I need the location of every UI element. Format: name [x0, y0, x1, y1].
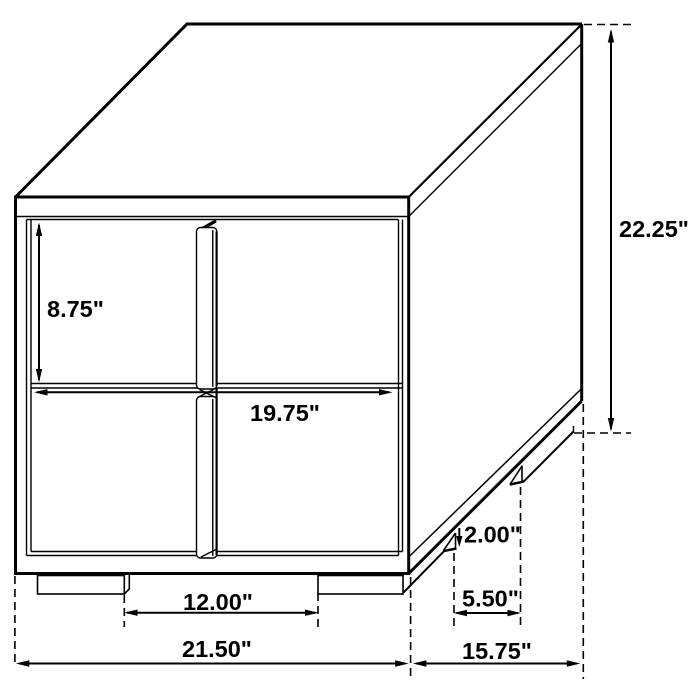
svg-text:2.00": 2.00": [464, 522, 521, 548]
svg-text:22.25": 22.25": [619, 216, 689, 242]
svg-text:15.75": 15.75": [462, 638, 532, 664]
svg-text:5.50": 5.50": [462, 586, 519, 612]
svg-text:12.00": 12.00": [183, 589, 253, 615]
svg-text:19.75": 19.75": [250, 400, 320, 426]
svg-text:8.75": 8.75": [47, 296, 104, 322]
svg-text:21.50": 21.50": [182, 636, 252, 662]
